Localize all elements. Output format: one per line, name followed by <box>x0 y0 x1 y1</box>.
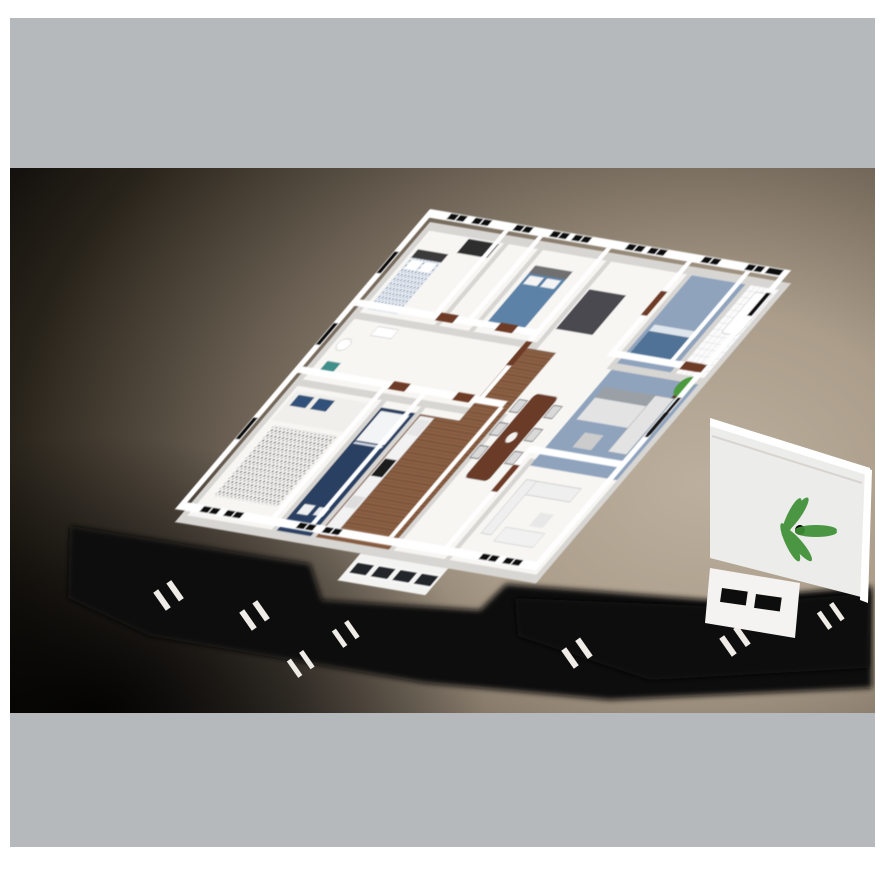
top-gray-band <box>10 18 875 168</box>
floorplan-render <box>10 168 875 713</box>
bottom-gray-band <box>10 713 875 847</box>
palm-leaf <box>795 527 837 537</box>
page: { "page": { "background": "#ffffff" }, "… <box>0 0 884 876</box>
render-viewport <box>10 168 875 713</box>
